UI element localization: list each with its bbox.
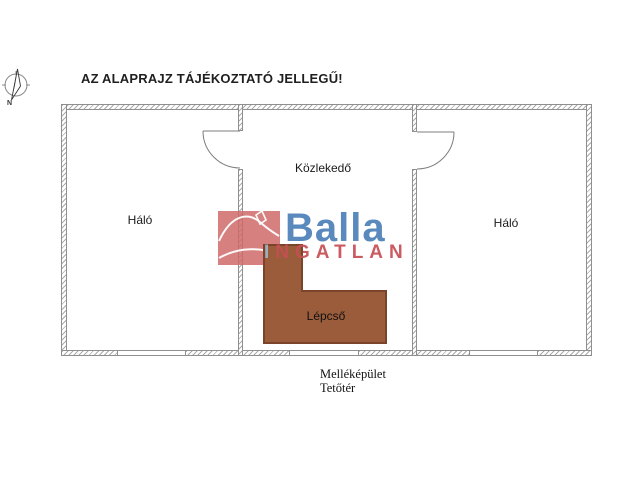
disclaimer-title: AZ ALAPRAJZ TÁJÉKOZTATÓ JELLEGŰ!	[81, 71, 343, 86]
caption-block: Melléképület Tetőtér	[320, 367, 386, 395]
room-label-hallway: Közlekedő	[283, 161, 363, 175]
logo-subtitle-text: INGATLAN	[264, 243, 409, 262]
compass-icon: N	[2, 69, 30, 107]
floorplan-canvas: N AZ ALAPRAJZ TÁJÉKOZTATÓ JELLEGŰ! Háló …	[0, 0, 640, 480]
stairs-label: Lépcső	[286, 309, 366, 323]
logo-subtitle-rest: NGATLAN	[275, 242, 408, 263]
logo-subtitle-first-letter: I	[264, 242, 275, 263]
door-left	[203, 131, 240, 168]
caption-floor: Tetőtér	[320, 381, 386, 395]
compass-north-label: N	[7, 100, 12, 107]
room-label-bedroom-left: Háló	[105, 213, 175, 227]
door-right	[417, 132, 454, 169]
caption-building: Melléképület	[320, 367, 386, 381]
room-label-bedroom-right: Háló	[471, 216, 541, 230]
